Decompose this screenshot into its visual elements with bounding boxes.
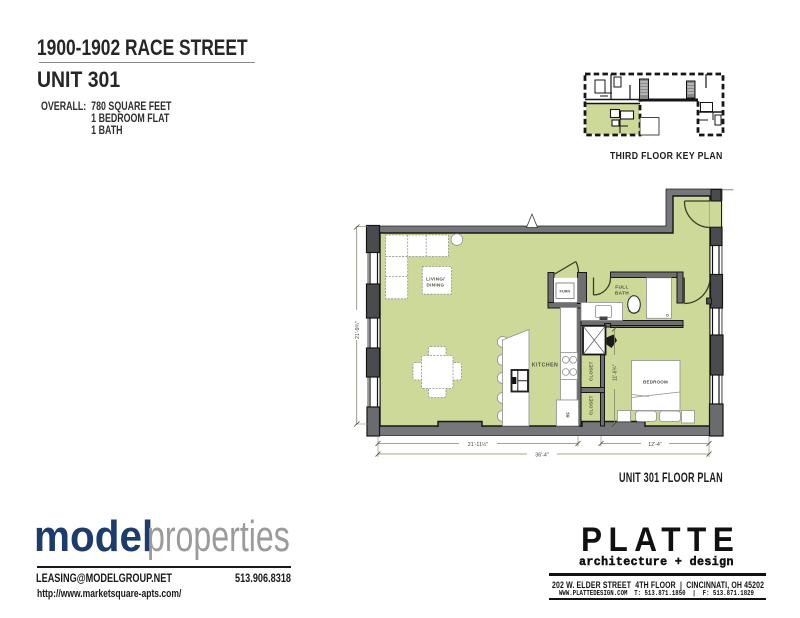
svg-text:CLOSET: CLOSET [589,361,594,381]
svg-text:36'-4": 36'-4" [535,452,549,458]
svg-text:DINING: DINING [427,283,445,288]
svg-text:BATH: BATH [615,291,629,297]
svg-text:11'-6¾": 11'-6¾" [613,364,619,381]
svg-text:21'-9¾": 21'-9¾" [355,321,361,339]
svg-text:BEDROOM: BEDROOM [643,380,668,385]
svg-text:12'-4": 12'-4" [648,442,662,448]
svg-text:RF: RF [566,411,571,417]
svg-text:FURN: FURN [560,290,571,294]
svg-text:D: D [666,314,669,318]
svg-text:FULL: FULL [615,285,628,291]
svg-text:CLOSET: CLOSET [589,395,594,415]
svg-text:21'-11½": 21'-11½" [468,441,489,448]
svg-text:KITCHEN: KITCHEN [532,363,559,369]
svg-text:LIVING/: LIVING/ [426,277,445,282]
